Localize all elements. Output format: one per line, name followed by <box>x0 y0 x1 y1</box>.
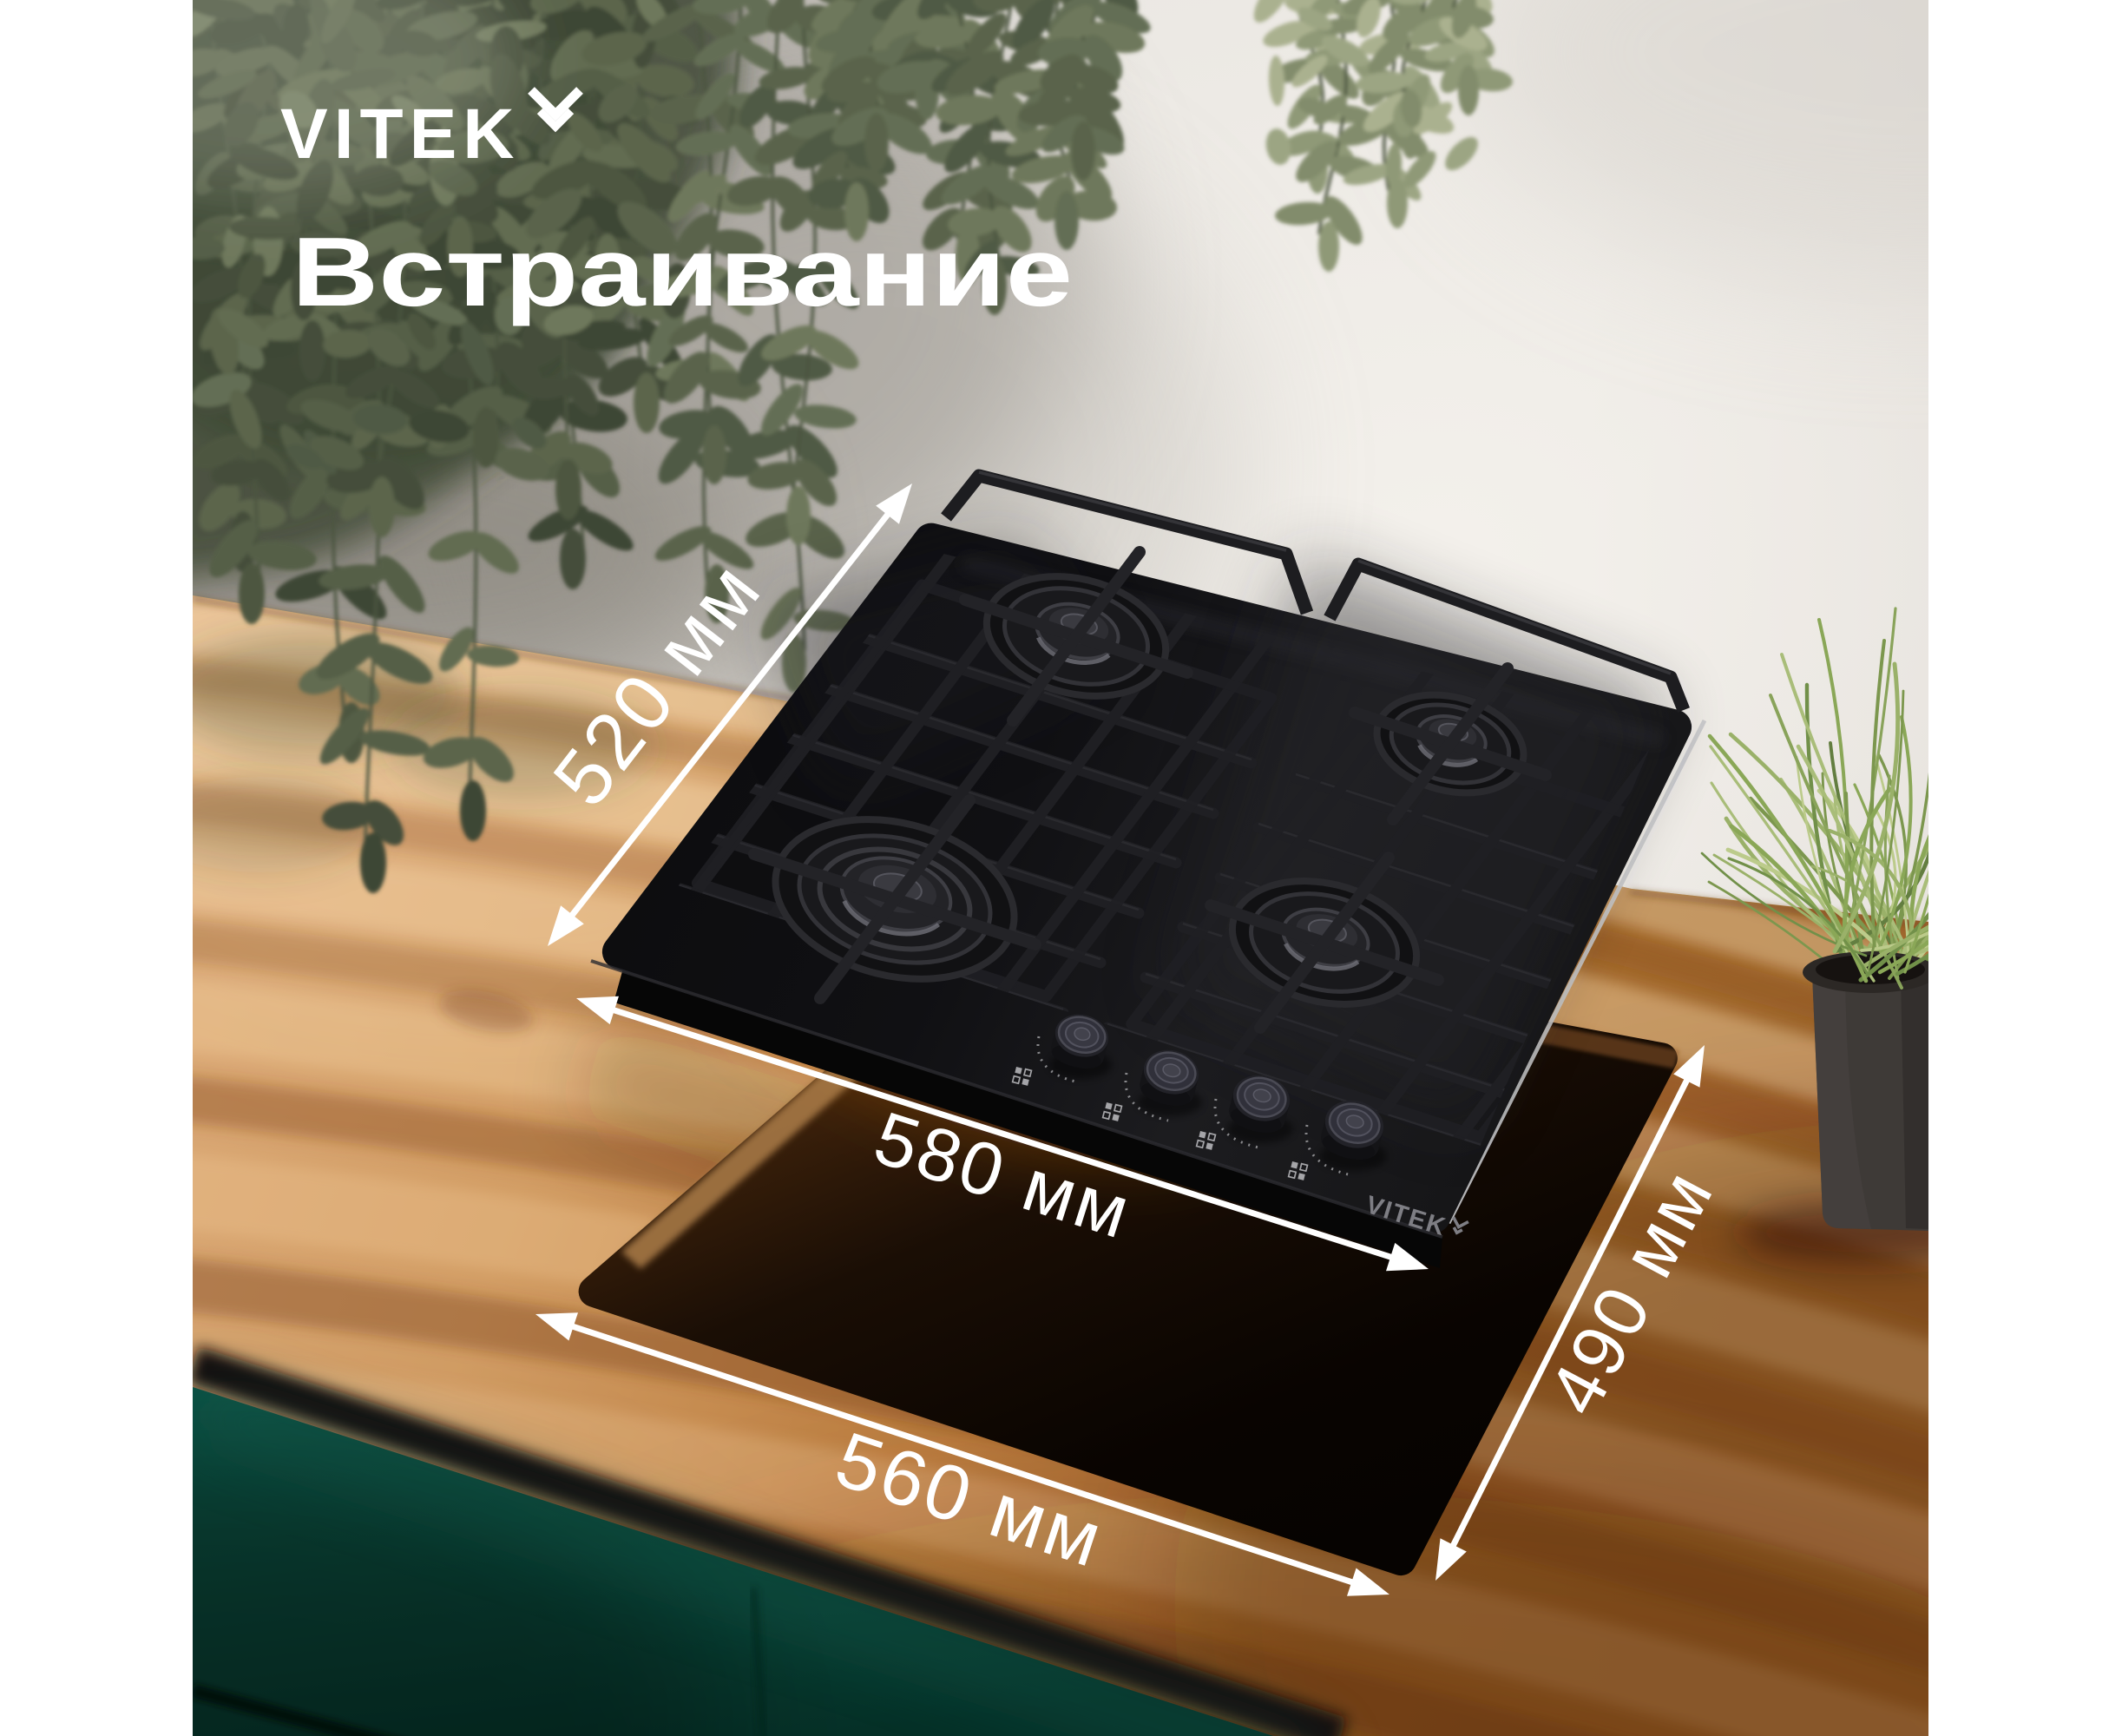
svg-text:VITEK: VITEK <box>280 95 520 174</box>
svg-text:Встраивание: Встраивание <box>292 217 1073 326</box>
